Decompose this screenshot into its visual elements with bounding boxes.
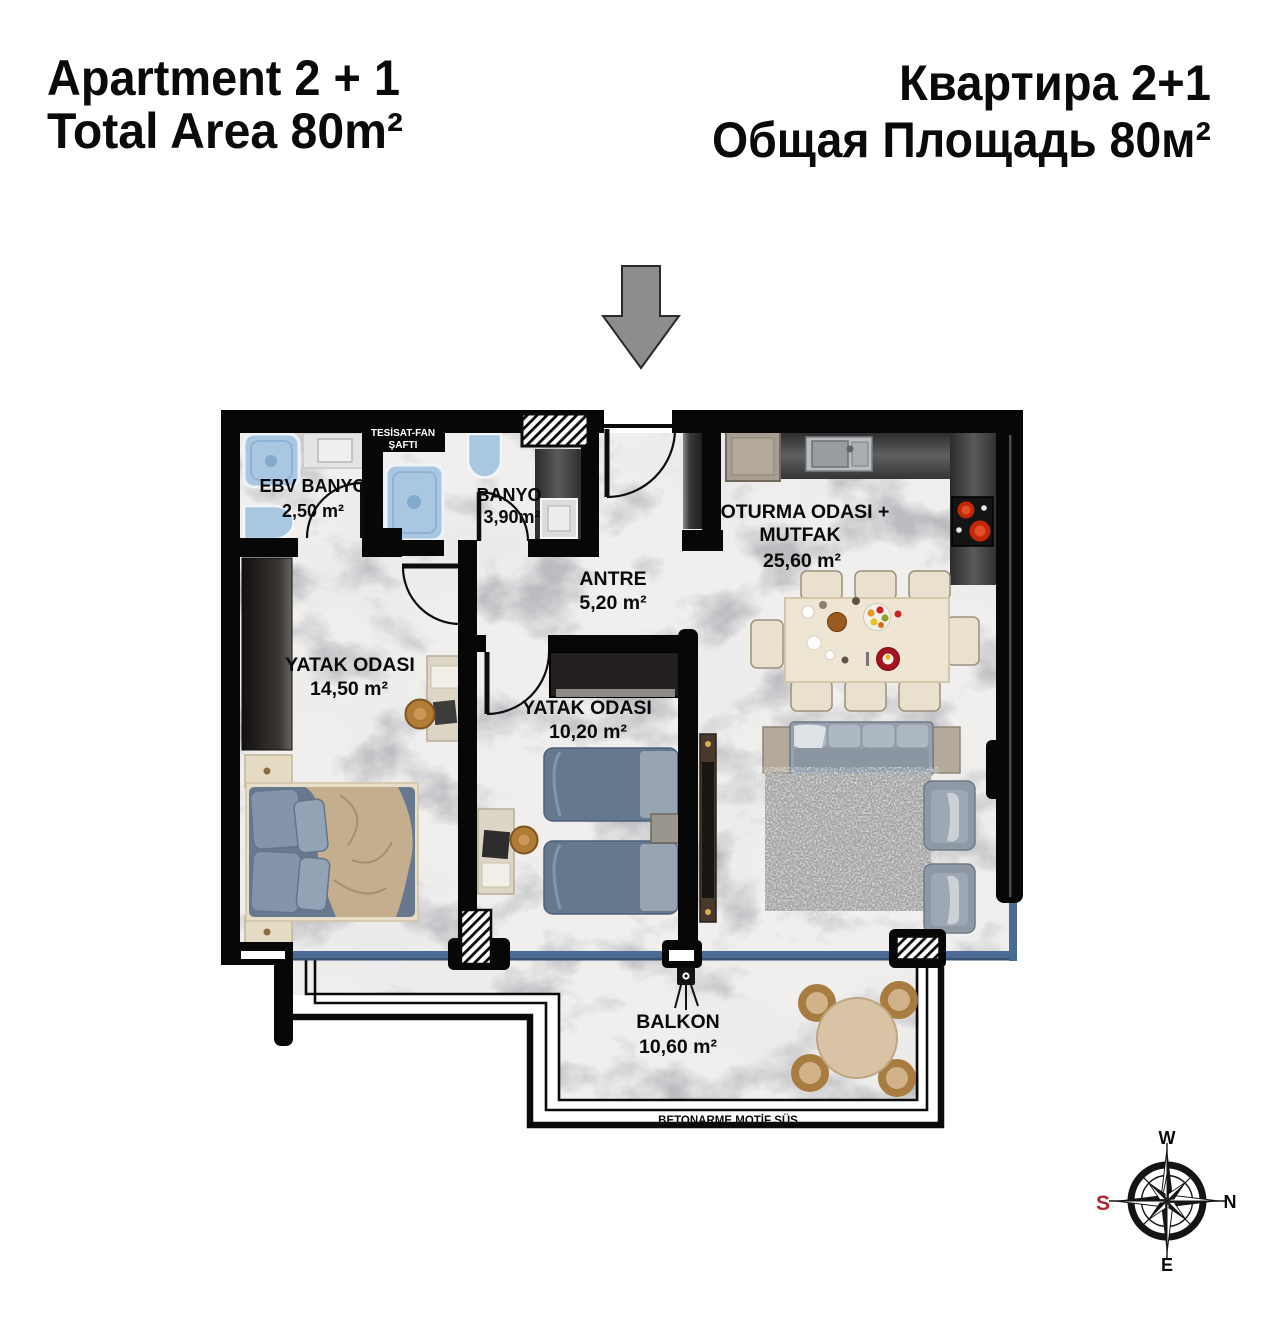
svg-text:BETONARME MOTİF SÜS: BETONARME MOTİF SÜS (658, 1114, 798, 1127)
svg-text:TESİSAT-FAN: TESİSAT-FAN (371, 426, 435, 439)
svg-text:2,50 m²: 2,50 m² (282, 501, 344, 521)
svg-text:Total Area 80m²: Total Area 80m² (47, 103, 403, 159)
svg-text:Общая Площадь 80м²: Общая Площадь 80м² (712, 112, 1211, 168)
svg-text:Apartment 2 + 1: Apartment 2 + 1 (47, 50, 400, 106)
svg-text:5,20 m²: 5,20 m² (579, 592, 647, 614)
svg-text:BANYO: BANYO (476, 485, 541, 505)
svg-text:ŞAFTI: ŞAFTI (389, 440, 418, 451)
svg-text:YATAK ODASI: YATAK ODASI (522, 697, 652, 719)
svg-text:25,60 m²: 25,60 m² (763, 550, 842, 572)
svg-text:EBV BANYO: EBV BANYO (259, 476, 366, 496)
svg-text:N: N (1224, 1192, 1237, 1212)
svg-text:Квартира 2+1: Квартира 2+1 (899, 55, 1211, 111)
svg-text:BALKON: BALKON (636, 1011, 719, 1033)
svg-text:W: W (1159, 1128, 1176, 1148)
svg-text:YATAK ODASI: YATAK ODASI (285, 654, 415, 676)
svg-text:10,60 m²: 10,60 m² (639, 1036, 718, 1058)
svg-text:14,50 m²: 14,50 m² (310, 678, 389, 700)
svg-text:MUTFAK: MUTFAK (759, 524, 840, 546)
svg-text:E: E (1161, 1255, 1173, 1275)
svg-text:OTURMA ODASI +: OTURMA ODASI + (721, 501, 890, 523)
svg-text:ANTRE: ANTRE (579, 568, 646, 590)
svg-text:10,20 m²: 10,20 m² (549, 721, 628, 743)
svg-text:S: S (1096, 1192, 1110, 1215)
svg-text:3,90m²: 3,90m² (483, 507, 540, 527)
